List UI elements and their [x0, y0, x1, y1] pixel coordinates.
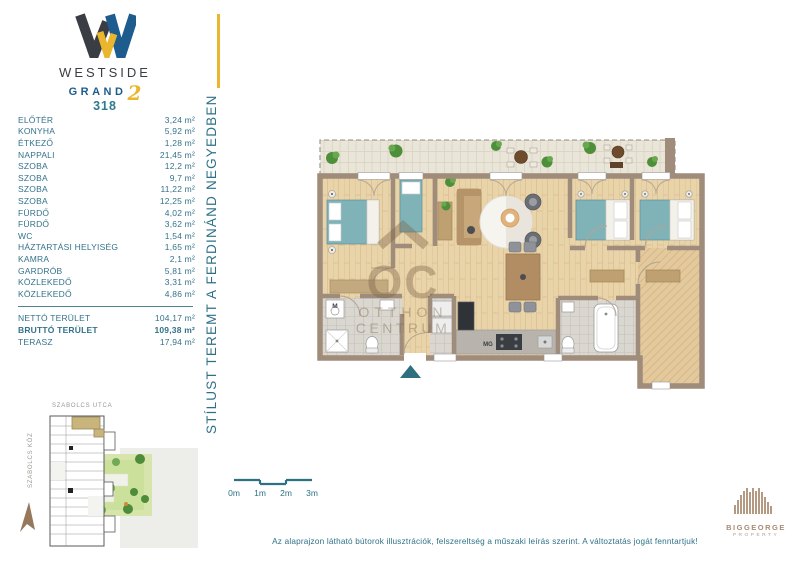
room-area: 1,54 m² — [165, 231, 195, 241]
microwave-label: MG — [483, 342, 493, 348]
developer-logo: BIGGEORGE PROPERTY — [718, 484, 794, 538]
watermark-oc: OC — [367, 256, 440, 308]
watermark-centrum: CENTRUM — [356, 320, 451, 336]
total-row: TERASZ17,94 m² — [18, 336, 195, 348]
corridor-floor — [638, 248, 702, 358]
table-row: KÖZLEKEDŐ4,86 m² — [18, 288, 195, 300]
room-area: 4,02 m² — [165, 208, 195, 218]
total-row: BRUTTÓ TERÜLET109,38 m² — [18, 324, 195, 336]
room-label: SZOBA — [18, 173, 48, 183]
brand-name: WESTSIDE — [35, 65, 175, 80]
apartment-number: 318 — [35, 99, 175, 113]
scale-bar: 0m 1m 2m 3m — [228, 472, 328, 500]
room-area: 1,28 m² — [165, 138, 195, 148]
brand-grand: GRAND — [69, 86, 127, 98]
table-row: SZOBA9,7 m² — [18, 172, 195, 184]
floor-plan: MG M — [300, 118, 780, 403]
total-label: BRUTTÓ TERÜLET — [18, 325, 98, 335]
table-row: SZOBA12,25 m² — [18, 195, 195, 207]
room-area: 11,22 m² — [160, 184, 195, 194]
brand-block: WESTSIDE GRAND2 — [35, 12, 175, 105]
room-label: ÉTKEZŐ — [18, 138, 53, 148]
table-row: KONYHA5,92 m² — [18, 126, 195, 138]
room-label: NAPPALI — [18, 150, 55, 160]
total-area: 104,17 m² — [155, 313, 195, 323]
table-row: FÜRDŐ3,62 m² — [18, 218, 195, 230]
room-label: KAMRA — [18, 254, 49, 264]
room-label: GARDRÓB — [18, 266, 62, 276]
total-label: NETTÓ TERÜLET — [18, 313, 90, 323]
developer-name: BIGGEORGE — [718, 523, 794, 532]
corridor-extension-floor — [640, 358, 702, 386]
room-area: 9,7 m² — [170, 173, 195, 183]
room-area: 3,62 m² — [165, 219, 195, 229]
room-label: FÜRDŐ — [18, 208, 49, 218]
table-row: SZOBA11,22 m² — [18, 184, 195, 196]
table-row: ÉTKEZŐ1,28 m² — [18, 137, 195, 149]
total-area: 17,94 m² — [160, 337, 195, 347]
table-row: HÁZTARTÁSI HELYISÉG1,65 m² — [18, 242, 195, 254]
table-row: KAMRA2,1 m² — [18, 253, 195, 265]
site-plan: SZABOLCS UTCA SZABOLCS KÖZ — [8, 396, 203, 564]
table-row: KÖZLEKEDŐ3,31 m² — [18, 276, 195, 288]
developer-division: PROPERTY — [718, 533, 794, 538]
room-area: 12,2 m² — [165, 161, 195, 171]
totals-table: NETTÓ TERÜLET104,17 m² BRUTTÓ TERÜLET109… — [18, 312, 195, 348]
tagline: STÍLUST TEREMT A FERDINÁND NEGYEDBEN — [204, 92, 226, 434]
room-label: KÖZLEKEDŐ — [18, 289, 72, 299]
street-label-top: SZABOLCS UTCA — [52, 403, 112, 409]
room-area: 1,65 m² — [165, 242, 195, 252]
scale-tick: 0m — [228, 488, 240, 498]
room-area: 5,92 m² — [165, 126, 195, 136]
table-row: SZOBA12,2 m² — [18, 160, 195, 172]
table-divider — [18, 306, 193, 307]
total-row: NETTÓ TERÜLET104,17 m² — [18, 312, 195, 324]
room-area: 2,1 m² — [170, 254, 195, 264]
room-area: 12,25 m² — [160, 196, 195, 206]
table-row: ELŐTÉR3,24 m² — [18, 114, 195, 126]
room-label: SZOBA — [18, 196, 48, 206]
room-label: SZOBA — [18, 161, 48, 171]
street-label-left: SZABOLCS KÖZ — [27, 432, 34, 488]
room-label: SZOBA — [18, 184, 48, 194]
room-area: 4,86 m² — [165, 289, 195, 299]
tagline-accent-line — [217, 14, 220, 88]
room-area-table: ELŐTÉR3,24 m² KONYHA5,92 m² ÉTKEZŐ1,28 m… — [18, 114, 195, 300]
entrance-arrow-icon — [400, 365, 421, 378]
room-label: KÖZLEKEDŐ — [18, 277, 72, 287]
developer-building-icon — [728, 484, 784, 516]
scale-tick: 3m — [306, 488, 318, 498]
disclaimer-text: Az alaprajzon látható bútorok illusztrác… — [215, 537, 755, 546]
watermark-otthon: OTTHON — [358, 304, 447, 320]
room-label: FÜRDŐ — [18, 219, 49, 229]
north-arrow-icon — [20, 502, 35, 532]
table-row: NAPPALI21,45 m² — [18, 149, 195, 161]
room-area: 3,24 m² — [165, 115, 195, 125]
room-label: KONYHA — [18, 126, 55, 136]
room-label: WC — [18, 231, 33, 241]
table-row: FÜRDŐ4,02 m² — [18, 207, 195, 219]
scale-tick: 1m — [254, 488, 266, 498]
room-area: 5,81 m² — [165, 266, 195, 276]
total-label: TERASZ — [18, 337, 53, 347]
room-label: HÁZTARTÁSI HELYISÉG — [18, 242, 118, 252]
westside-w-logo-icon — [74, 12, 136, 58]
room-area: 21,45 m² — [160, 150, 195, 160]
table-row: WC1,54 m² — [18, 230, 195, 242]
washing-machine-label: M — [332, 303, 337, 310]
table-row: GARDRÓB5,81 m² — [18, 265, 195, 277]
room-label: ELŐTÉR — [18, 115, 53, 125]
total-area: 109,38 m² — [154, 325, 195, 335]
scale-tick: 2m — [280, 488, 292, 498]
room-area: 3,31 m² — [165, 277, 195, 287]
